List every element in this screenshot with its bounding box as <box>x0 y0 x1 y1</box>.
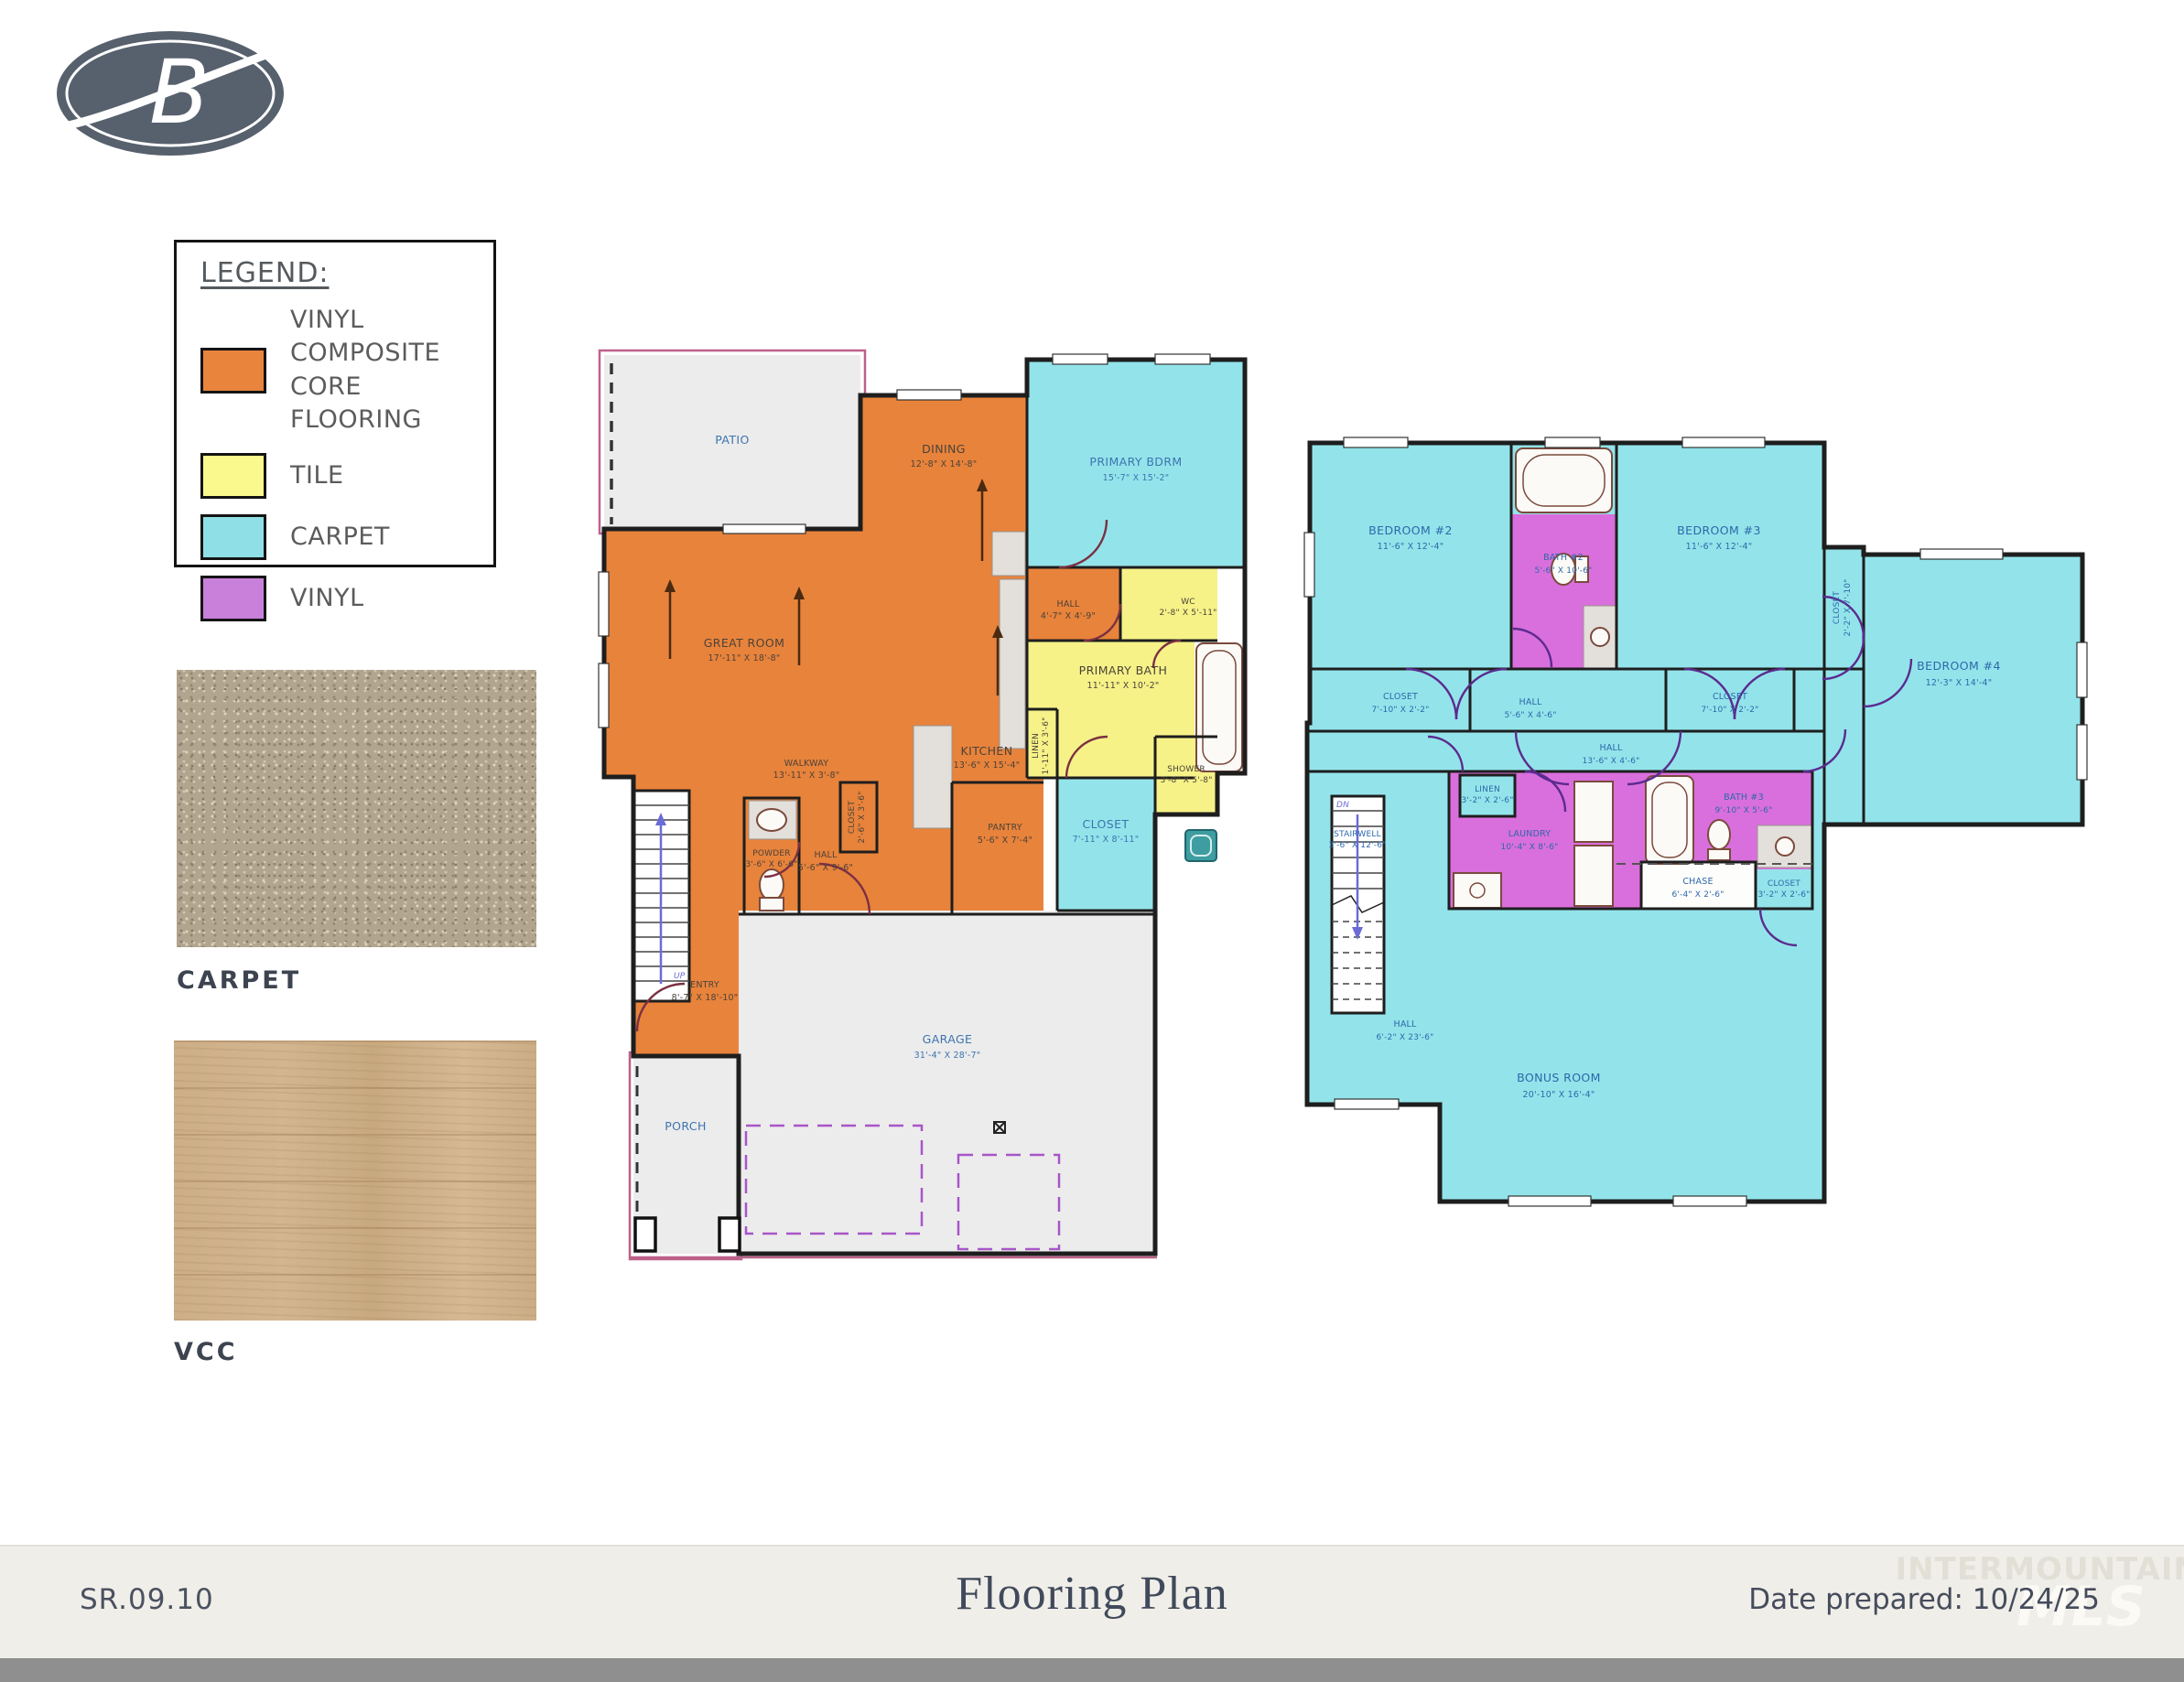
floor-plan-level2: BEDROOM #2 11'-6" X 12'-4" BATH #2 5'-6"… <box>1289 423 2103 1219</box>
room-label-powder: POWDER <box>752 849 790 858</box>
closet-chase-area <box>1756 869 1812 909</box>
room-dims-bonus-room: 20'-10" X 16'-4" <box>1523 1090 1595 1100</box>
room-label-bedroom2: BEDROOM #2 <box>1368 523 1453 537</box>
carpet-sample-image <box>177 670 536 947</box>
room-label-hall-bottom: HALL <box>1393 1019 1417 1030</box>
legend-label-carpet: CARPET <box>290 521 390 554</box>
legend-item-carpet: CARPET <box>200 514 470 560</box>
room-dims-powder: 3'-6" X 6'-6" <box>745 860 797 869</box>
room-dims-garage: 31'-4" X 28'-7" <box>914 1051 981 1061</box>
room-label-entry: ENTRY <box>690 980 719 990</box>
room-dims-bedroom4: 12'-3" X 14'-4" <box>1926 678 1993 688</box>
legend-item-vinyl: VINYL <box>200 576 470 621</box>
room-label-primary-bdrm: PRIMARY BDRM <box>1089 455 1182 469</box>
stair-down-label: DN <box>1336 801 1349 810</box>
sheet-number: SR.09.10 <box>80 1583 214 1616</box>
room-label-closet-small: CLOSET <box>848 801 857 834</box>
porch-post <box>635 1218 655 1251</box>
vcc-sample-caption: VCC <box>174 1338 238 1366</box>
legend-item-vcc: VINYL COMPOSITE CORE FLOORING <box>200 304 470 437</box>
room-label-patio: PATIO <box>715 433 749 447</box>
room-label-primary-closet: CLOSET <box>1083 817 1130 831</box>
stair-up-label: UP <box>674 972 686 981</box>
room-label-dining: DINING <box>922 442 966 456</box>
legend-title: LEGEND: <box>200 257 470 289</box>
room-label-laundry: LAUNDRY <box>1508 829 1552 839</box>
room-dims-hall-bottom: 6'-2" X 23'-6" <box>1376 1033 1433 1042</box>
room-label-garage: GARAGE <box>923 1032 973 1046</box>
room-dims-linen2: 3'-2" X 2'-6" <box>1461 796 1513 805</box>
room-dims-primary-bdrm: 15'-7" X 15'-2" <box>1103 473 1170 483</box>
room-label-bonus-room: BONUS ROOM <box>1517 1071 1601 1084</box>
room-label-pantry: PANTRY <box>988 823 1022 833</box>
room-dims-closet-b4: 2'-2" X 7'-10" <box>1843 578 1853 636</box>
room-label-walkway: WALKWAY <box>784 759 828 769</box>
room-dims-walkway: 13'-11" X 3'-8" <box>773 771 840 781</box>
room-label-porch: PORCH <box>665 1119 707 1133</box>
legend-label-vinyl: VINYL <box>290 582 364 615</box>
room-dims-closet-small: 2'-6" X 3'-6" <box>858 791 867 843</box>
room-label-linen2: LINEN <box>1475 785 1500 794</box>
carpet-sample-caption: CARPET <box>177 966 301 995</box>
room-dims-laundry: 10'-4" X 8'-6" <box>1500 843 1558 852</box>
room-dims-great-room: 17'-11" X 18'-8" <box>708 653 781 663</box>
washer <box>1574 782 1613 842</box>
room-label-chase: CHASE <box>1682 877 1713 887</box>
legend-swatch-carpet <box>200 514 266 560</box>
room-label-shower: SHOWER <box>1167 765 1206 774</box>
room-dims-closet-chase: 3'-2" X 2'-6" <box>1757 890 1810 900</box>
bath3-toilet-tank <box>1708 849 1730 860</box>
hall-band-area <box>633 778 1043 916</box>
room-dims-bedroom2: 11'-6" X 12'-4" <box>1378 542 1444 552</box>
porch-post <box>719 1218 740 1251</box>
room-dims-closet-b3: 7'-10" X 2'-2" <box>1701 706 1758 715</box>
sheet-page: B LEGEND: VINYL COMPOSITE CORE FLOORING … <box>0 0 2184 1682</box>
room-dims-wc: 2'-8" X 5'-11" <box>1159 609 1216 618</box>
legend-label-tile: TILE <box>290 459 344 492</box>
laundry-sink <box>1454 873 1501 908</box>
room-dims-stairwell: 3'-6" X 12'-6" <box>1328 841 1386 850</box>
room-dims-bath3: 9'-10" X 5'-6" <box>1714 806 1772 815</box>
room-label-wc: WC <box>1181 598 1195 607</box>
legend-swatch-tile <box>200 453 266 499</box>
bath3-sink <box>1776 837 1794 856</box>
bath3-tub <box>1646 776 1693 864</box>
room-label-hall-upper: HALL <box>1056 599 1080 609</box>
greatroom-kitchen-area <box>604 529 1027 778</box>
sheet-title: Flooring Plan <box>956 1567 1228 1621</box>
powder-sink <box>757 809 786 831</box>
room-label-bedroom3: BEDROOM #3 <box>1677 523 1761 537</box>
legend-box: LEGEND: VINYL COMPOSITE CORE FLOORING TI… <box>174 240 496 567</box>
title-block: INTERMOUNTAIN MLS SR.09.10 Flooring Plan… <box>0 1545 2184 1660</box>
room-label-bath2: BATH #2 <box>1543 553 1584 563</box>
room-label-bath3: BATH #3 <box>1724 792 1764 803</box>
builder-logo: B <box>53 27 291 165</box>
kitchen-island <box>914 726 952 828</box>
room-dims-shower: 3'-8" X 5'-8" <box>1160 776 1212 785</box>
room-label-great-room: GREAT ROOM <box>704 636 785 650</box>
page-edge <box>0 1658 2184 1682</box>
kitchen-counter <box>1000 579 1025 749</box>
room-dims-primary-closet: 7'-11" X 8'-11" <box>1073 835 1140 845</box>
legend-label-vcc: VINYL COMPOSITE CORE FLOORING <box>290 304 470 437</box>
legend-swatch-vcc <box>200 348 266 394</box>
room-dims-kitchen: 13'-6" X 15'-4" <box>954 760 1021 771</box>
room-dims-bath2: 5'-6" X 10'-6" <box>1534 566 1592 576</box>
room-dims-pantry: 5'-6" X 7'-4" <box>978 836 1033 846</box>
room-dims-bedroom3: 11'-6" X 12'-4" <box>1686 542 1753 552</box>
room-dims-hall-mid: 13'-6" X 4'-6" <box>1582 757 1639 766</box>
room-label-bedroom4: BEDROOM #4 <box>1917 659 2001 673</box>
room-dims-dining: 12'-8" X 14'-8" <box>911 459 978 469</box>
room-dims-entry: 8'-7" X 18'-10" <box>672 993 739 1003</box>
room-dims-chase: 6'-4" X 2'-6" <box>1671 890 1724 900</box>
legend-item-tile: TILE <box>200 453 470 499</box>
room-dims-closet-b2: 7'-10" X 2'-2" <box>1371 706 1429 715</box>
room-dims-hall-lower: 5'-6" X 9'-6" <box>798 863 853 873</box>
wc-area <box>1120 567 1217 641</box>
bath2-tub <box>1516 448 1612 512</box>
bath3-toilet <box>1708 820 1730 849</box>
room-label-hall-top: HALL <box>1519 697 1542 707</box>
room-label-hall-mid: HALL <box>1599 743 1623 753</box>
legend-swatch-vinyl <box>200 576 266 621</box>
date-prepared: Date prepared: 10/24/25 <box>1748 1583 2100 1616</box>
room-dims-hall-upper: 4'-7" X 4'-9" <box>1041 611 1096 621</box>
floor-plan-level1: PATIO DINING 12'-8" X 14'-8" PRIMARY BDR… <box>595 343 1272 1304</box>
room-label-linen1: LINEN <box>1032 733 1041 759</box>
room-dims-hall-top: 5'-6" X 4'-6" <box>1504 711 1556 720</box>
room-label-stairwell: STAIRWELL <box>1334 830 1381 839</box>
room-label-closet-chase: CLOSET <box>1768 879 1800 889</box>
logo-letter: B <box>149 41 210 144</box>
fridge <box>992 532 1025 576</box>
vcc-sample-image <box>174 1040 536 1321</box>
garage-area <box>739 911 1155 1254</box>
room-dims-linen1: 1'-11" X 3'-6" <box>1042 717 1051 774</box>
powder-toilet-tank <box>760 898 784 911</box>
dryer <box>1574 846 1613 906</box>
room-label-kitchen: KITCHEN <box>961 744 1013 758</box>
room-label-closet-b2: CLOSET <box>1383 692 1418 702</box>
room-dims-primary-bath: 11'-11" X 10'-2" <box>1087 681 1160 691</box>
bath2-sink <box>1591 628 1609 646</box>
room-label-closet-b3: CLOSET <box>1713 692 1747 702</box>
room-label-primary-bath: PRIMARY BATH <box>1079 663 1168 677</box>
room-label-closet-b4: CLOSET <box>1833 591 1842 624</box>
room-label-hall-lower: HALL <box>814 850 838 860</box>
